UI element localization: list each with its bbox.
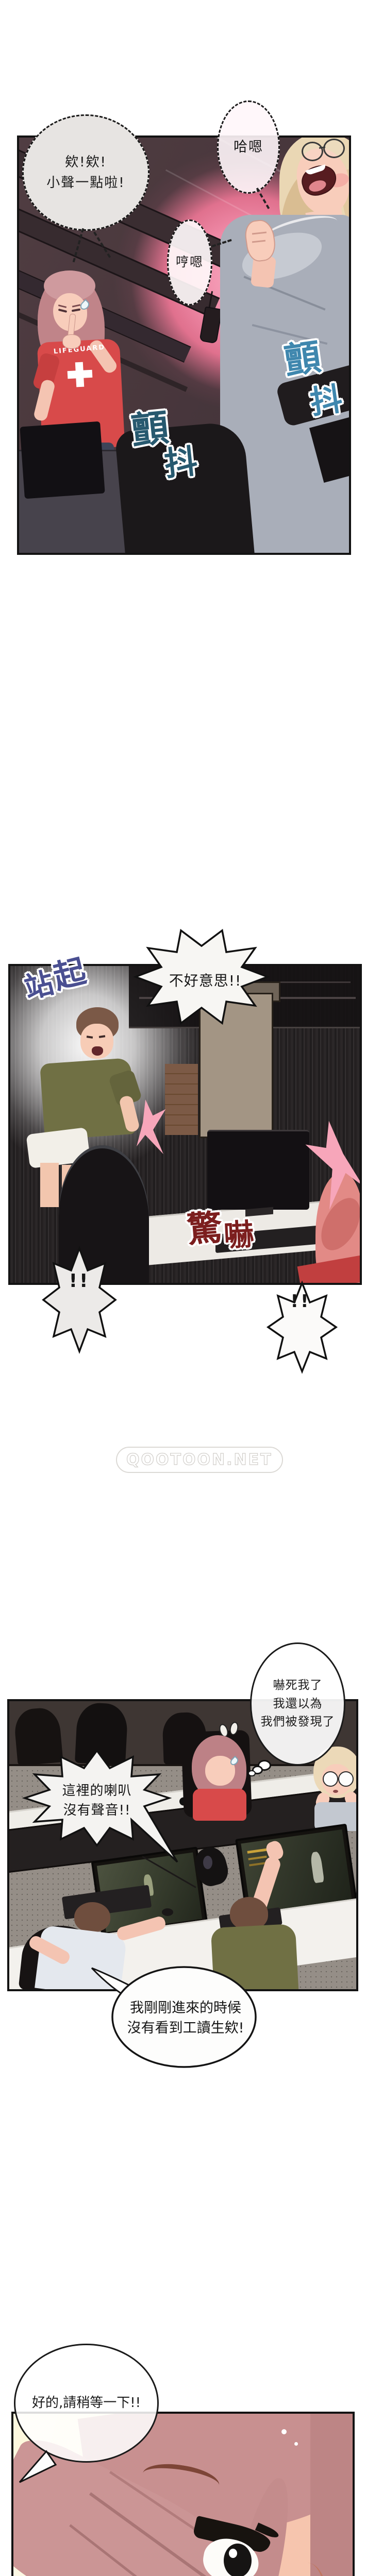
whiteguy-hair [74,1902,110,1932]
headset-highlight [203,1856,212,1869]
speech-bubble-parttimer-text: 我剛剛進來的時候 沒有看到工讀生欸! [119,1998,253,2038]
shout-bubble-text: 不好意思!! [154,970,257,990]
iris-highlight [229,2549,237,2558]
man-leg [40,1163,59,1207]
bang-bubble-left [41,1246,118,1357]
sfx-shock-char1: 驚 [186,1210,224,1248]
blonde-mouth [333,1790,338,1793]
sfx-tremble-center-char2: 抖 [163,445,199,481]
thought-line: 嚇死我了 [273,1676,323,1695]
glasses-left-lens [302,142,323,161]
speech-bubble-gasp-top: 哈嗯 [217,100,280,194]
bang-bubble-left-text: !! [54,1270,105,1292]
speech-bubble-shh: 欸!欸! 小聲一點啦! [22,114,149,231]
speech-bubble-gasp-mid: 哼嗯 [167,219,212,306]
monitor-silhouette [20,421,105,499]
monitor [207,1130,309,1210]
speech-text: 好的,請稍等一下!! [32,2393,141,2413]
mouse [162,1908,173,1916]
lifeguard-cross-horizontal [68,370,93,379]
shout-line: 這裡的喇叭 [45,1782,148,1801]
bubble-text: 哈嗯 [234,137,263,158]
speech-bubble-wait-tail [14,2448,61,2487]
hair-right-column [310,2414,355,2576]
shout-bubble-speakers-text: 這裡的喇叭 沒有聲音!! [45,1782,148,1820]
thought-bubble-scared: 嚇死我了 我還以為 我們被發現了 [250,1642,345,1766]
sparkle-dot [294,2442,298,2446]
speech-line: 沒有看到工讀生欸! [119,2018,253,2038]
sfx-tremble-center-char1: 顫 [129,409,170,449]
redgirl-hand [62,334,81,349]
redgirl-shirt [193,1789,246,1821]
thought-line: 我還以為 [273,1695,323,1714]
speech-line: 我剛剛進來的時候 [119,1998,253,2018]
glasses-round-white [323,1771,338,1787]
sfx-tremble-right-char2: 抖 [308,383,344,419]
sfx-tremble-right-char1: 顫 [282,338,323,379]
bubble-text: 哼嗯 [176,252,204,273]
thought-trail-circle [248,1770,256,1776]
sfx-shock-char2: 嚇 [223,1219,255,1251]
game-menu-bar [248,1856,267,1860]
speech-bubble-wait: 好的,請稍等一下!! [14,2344,159,2463]
bubble-text-line: 小聲一點啦! [46,173,125,193]
site-watermark: QOOTOON.NET [116,1447,260,1473]
glasses-round-white [338,1771,354,1787]
thought-line: 我們被發現了 [261,1713,335,1732]
iris [224,2544,252,2576]
man-open-mouth [92,1046,103,1056]
webtoon-page: LIFEGUARD 顫 抖 顫 抖 [0,0,366,2576]
glasses-right-lens [323,139,345,158]
brick-wall [165,1064,198,1135]
shout-line: 沒有聲音!! [45,1801,148,1821]
site-watermark-text: QOOTOON.NET [116,1447,283,1473]
sfx-standup-char2: 起 [50,955,89,993]
sparkle-dot [281,2429,287,2434]
game-character [310,1851,324,1883]
bang-bubble-right-text: !! [275,1291,326,1312]
bubble-text-line: 欸!欸! [65,152,107,173]
